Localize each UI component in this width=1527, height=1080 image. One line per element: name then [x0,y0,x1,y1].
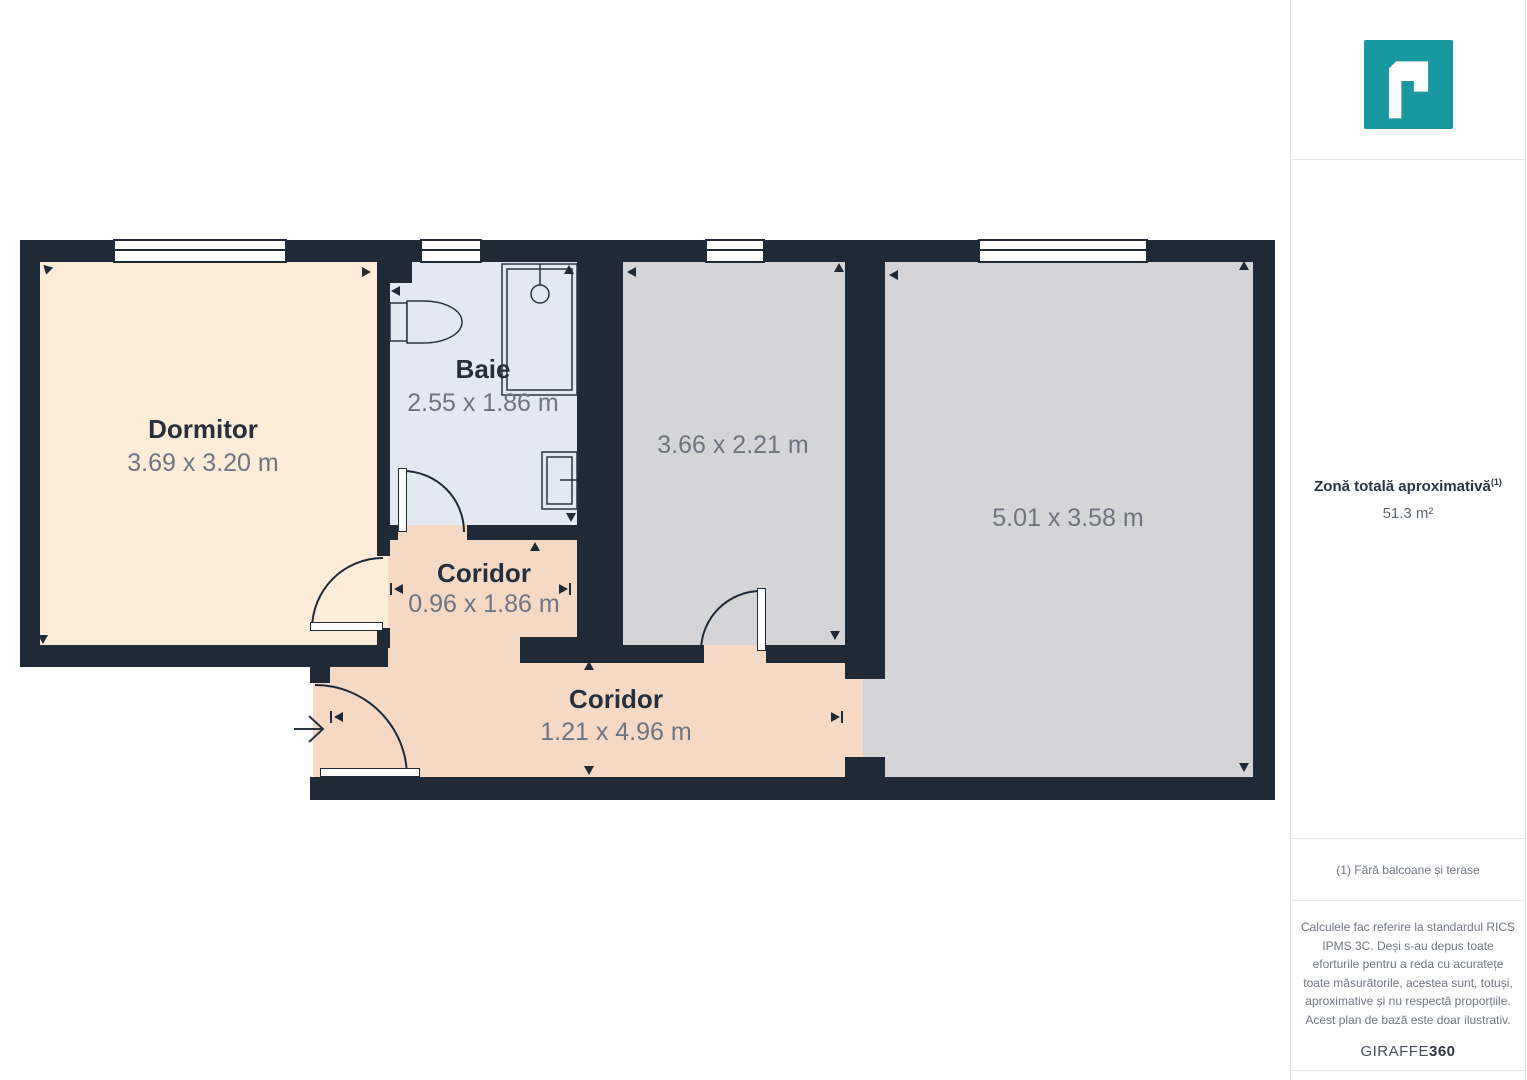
dimension-arrow-icon [834,263,844,272]
total-area-title: Zonă totală aproximativă(1) [1314,477,1502,495]
wall-room366-room501 [845,240,885,679]
dimension-tick [841,711,843,723]
room-dims-dormitor: 3.69 x 3.20 m [127,451,278,476]
dimension-tick [390,583,392,595]
dimension-arrow-icon [38,635,48,644]
dimension-arrow-icon [1239,261,1249,270]
wall-right [1253,240,1275,800]
wall-baie-step [377,262,412,283]
dormitor-door-leaf [310,622,383,631]
dimension-arrow-icon [362,267,371,277]
wall-coridor-small-stub [520,637,577,663]
dimension-arrow-icon [564,265,574,274]
room-label-dormitor: Dormitor [148,416,258,442]
window-room501 [978,239,1148,263]
baie-door-leaf [398,468,407,532]
brand-name: GIRAFFE [1360,1043,1429,1060]
wall-dormitor-baie-lower [377,628,390,648]
dimension-arrow-icon [584,766,594,775]
total-area-label: Zonă totală aproximativă [1314,478,1491,495]
dimension-arrow-icon [889,270,898,280]
room-dims-coridor-main: 1.21 x 4.96 m [540,720,691,745]
dimension-arrow-icon [566,513,576,522]
window-baie [420,239,482,263]
dimension-tick [569,583,571,595]
wall-bottom [310,777,1275,800]
wall-room366-bottom-right [766,645,845,663]
dimension-arrow-icon [530,637,540,646]
dimension-arrow-icon [334,712,343,722]
wall-baie-room366 [577,240,623,663]
dimension-arrow-icon [584,661,594,670]
disclaimer-section: Calculele fac referire la standardul RIC… [1291,901,1525,1071]
dimension-arrow-icon [831,712,840,722]
page: Dormitor 3.69 x 3.20 m Baie 2.55 x 1.86 … [0,0,1527,1080]
window-dormitor [113,239,287,263]
brand-wordmark: GIRAFFE360 [1360,1043,1455,1060]
room-label-coridor-main: Coridor [569,686,663,712]
total-area-superscript: (1) [1491,477,1502,487]
room-label-baie: Baie [456,356,511,382]
dimension-arrow-icon [394,584,403,594]
room-dims-coridor-small: 0.96 x 1.86 m [408,592,559,617]
footnote-text: (1) Fără balcoane și terase [1336,863,1479,877]
dimension-arrow-icon [1239,763,1249,772]
room-dims-baie: 2.55 x 1.86 m [407,391,558,416]
dimension-arrow-icon [627,267,636,277]
brand-suffix: 360 [1429,1043,1456,1060]
wall-entry-stub [310,663,330,683]
footnote-section: (1) Fără balcoane și terase [1291,839,1525,901]
wall-dormitor-bottom [20,645,388,667]
wall-baie-bottom-left [377,525,398,540]
total-area-value: 51.3 m² [1383,505,1434,522]
dimension-arrow-icon [830,631,840,640]
info-sidebar: Zonă totală aproximativă(1) 51.3 m² (1) … [1290,0,1526,1080]
wall-baie-bottom-right [467,525,577,540]
dimension-arrow-icon [530,542,540,551]
total-area-section: Zonă totală aproximativă(1) 51.3 m² [1291,160,1525,839]
window-room366 [705,239,765,263]
dimension-arrow-icon [559,584,568,594]
wall-room366-bottom-left [623,645,704,663]
room366-door-leaf [757,588,766,651]
room-label-coridor-small: Coridor [437,560,531,586]
room-dims-501: 5.01 x 3.58 m [992,506,1143,531]
entrance-door-leaf [320,768,420,777]
floor-plan: Dormitor 3.69 x 3.20 m Baie 2.55 x 1.86 … [0,0,1290,1080]
wall-dormitor-baie-upper [377,262,390,556]
wall-left [20,240,40,667]
dimension-arrow-icon [391,286,400,296]
giraffe360-logo-icon [1364,40,1453,129]
logo-section [1291,0,1525,160]
dimension-tick [330,711,332,723]
disclaimer-text: Calculele fac referire la standardul RIC… [1298,918,1518,1030]
room-dims-366: 3.66 x 2.21 m [657,433,808,458]
